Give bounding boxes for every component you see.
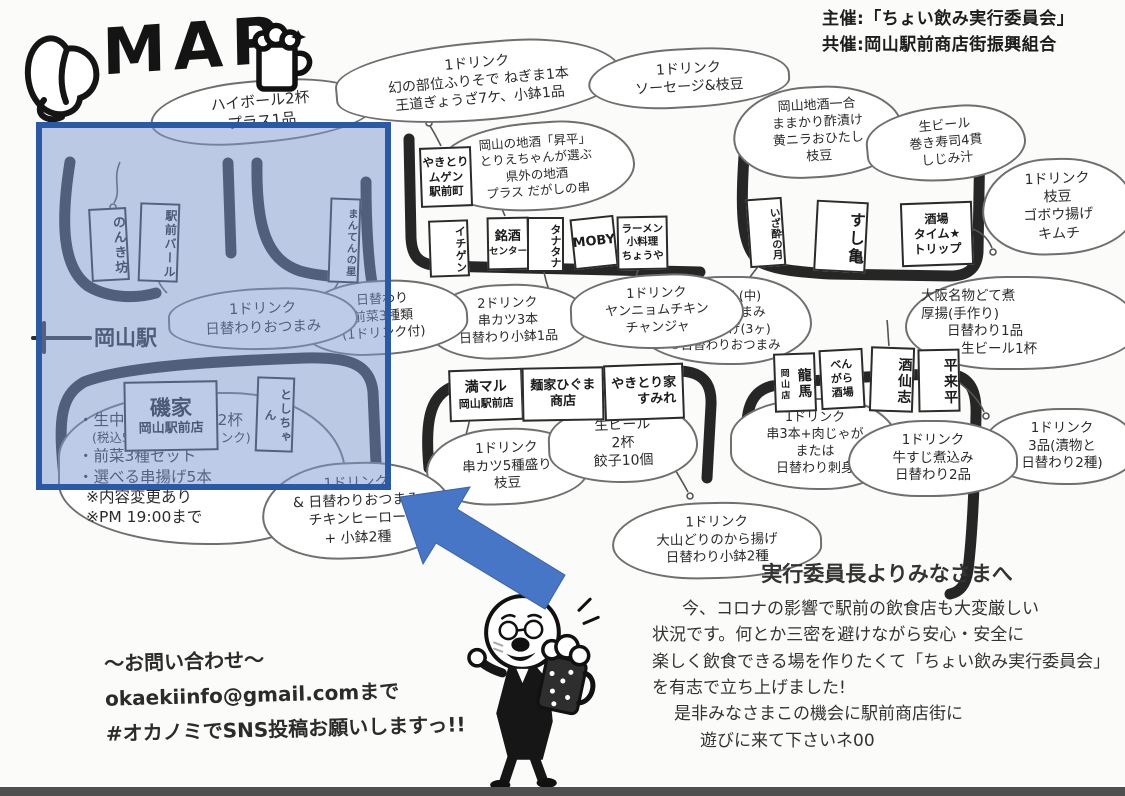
scan-edge-bar — [0, 787, 1125, 796]
highlight-arrow — [0, 0, 1125, 796]
